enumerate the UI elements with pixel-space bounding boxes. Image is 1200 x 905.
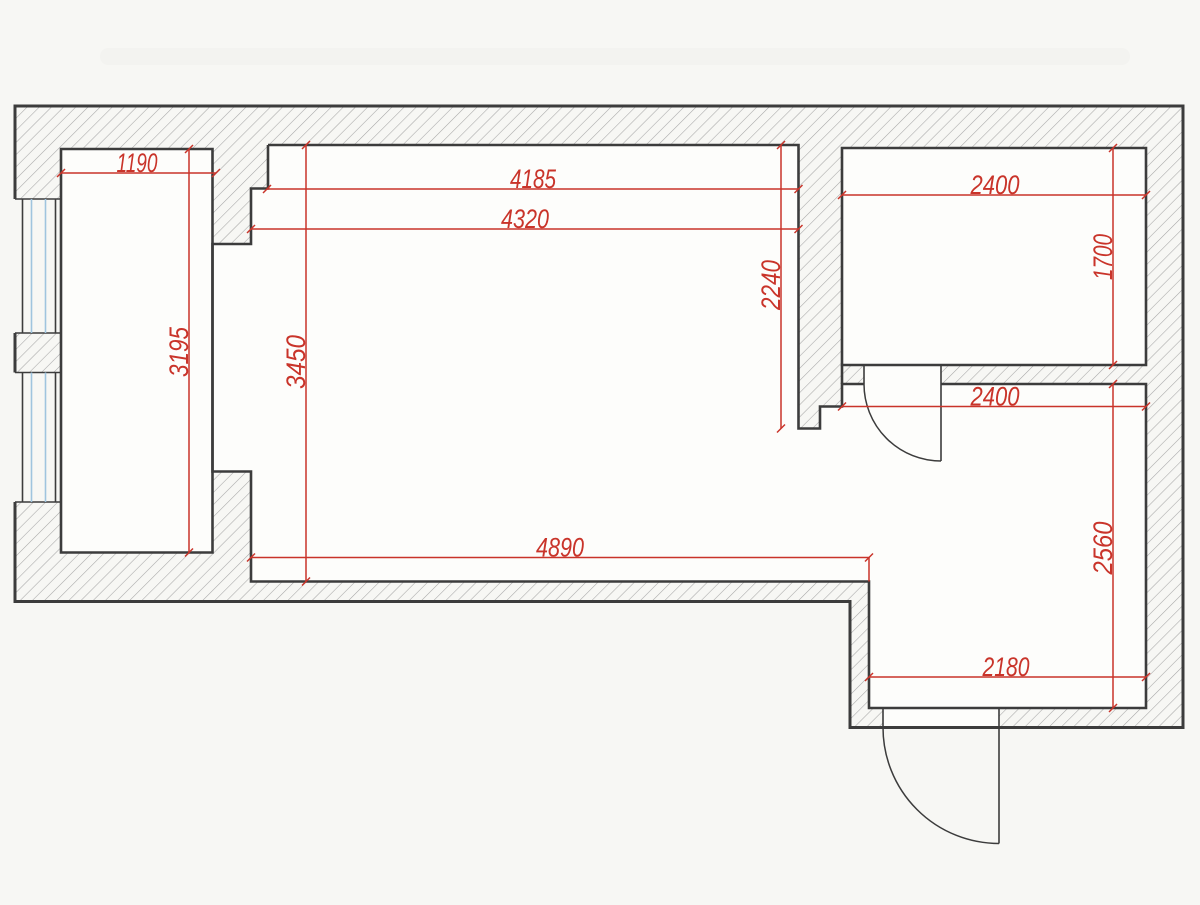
svg-text:4320: 4320 [501,204,549,234]
svg-text:3195: 3195 [164,326,194,377]
svg-text:2180: 2180 [982,652,1030,682]
svg-text:2400: 2400 [970,170,1020,200]
svg-text:2240: 2240 [756,260,786,311]
svg-text:4890: 4890 [536,533,584,563]
svg-text:2400: 2400 [970,382,1020,412]
svg-text:3450: 3450 [281,335,311,389]
svg-text:4185: 4185 [510,164,557,194]
svg-text:1190: 1190 [117,148,158,178]
svg-text:2560: 2560 [1088,522,1118,576]
svg-text:1700: 1700 [1088,234,1118,280]
